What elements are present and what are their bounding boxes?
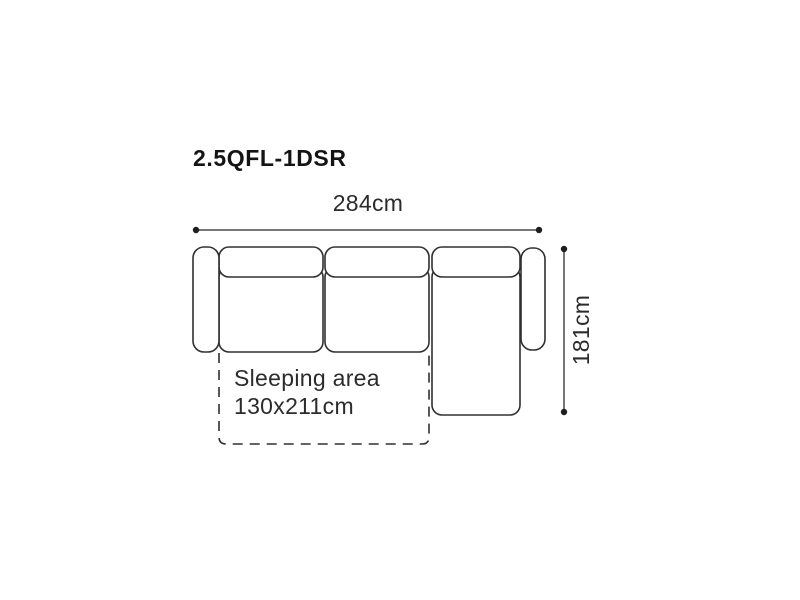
- sofa-dimension-diagram: 2.5QFL-1DSR 284cm 181cm: [0, 0, 800, 600]
- sleeping-area-label-line1: Sleeping area: [234, 365, 380, 391]
- chaise-seat-outline: [432, 267, 520, 415]
- width-dimension-endpoint-left-dot: [193, 227, 199, 233]
- depth-dimension-endpoint-top-dot: [561, 246, 567, 252]
- depth-dimension: 181cm: [561, 246, 594, 415]
- seat-cushion-2-outline: [325, 267, 429, 352]
- left-armrest-outline: [193, 247, 219, 352]
- product-model-title: 2.5QFL-1DSR: [193, 145, 347, 171]
- depth-dimension-label: 181cm: [568, 295, 594, 366]
- width-dimension-endpoint-right-dot: [536, 227, 542, 233]
- right-armrest-outline: [521, 248, 545, 350]
- seat-cushion-1-outline: [219, 267, 323, 352]
- diagram-canvas: 2.5QFL-1DSR 284cm 181cm: [0, 0, 800, 600]
- sleeping-area-label-line2: 130x211cm: [234, 393, 354, 419]
- depth-dimension-endpoint-bottom-dot: [561, 409, 567, 415]
- chaise-backrest-outline: [432, 247, 520, 277]
- backrest-1-outline: [219, 247, 323, 277]
- backrest-2-outline: [325, 247, 429, 277]
- width-dimension-label: 284cm: [333, 190, 404, 216]
- width-dimension: 284cm: [193, 190, 542, 233]
- sleeping-area: Sleeping area 130x211cm: [219, 353, 429, 444]
